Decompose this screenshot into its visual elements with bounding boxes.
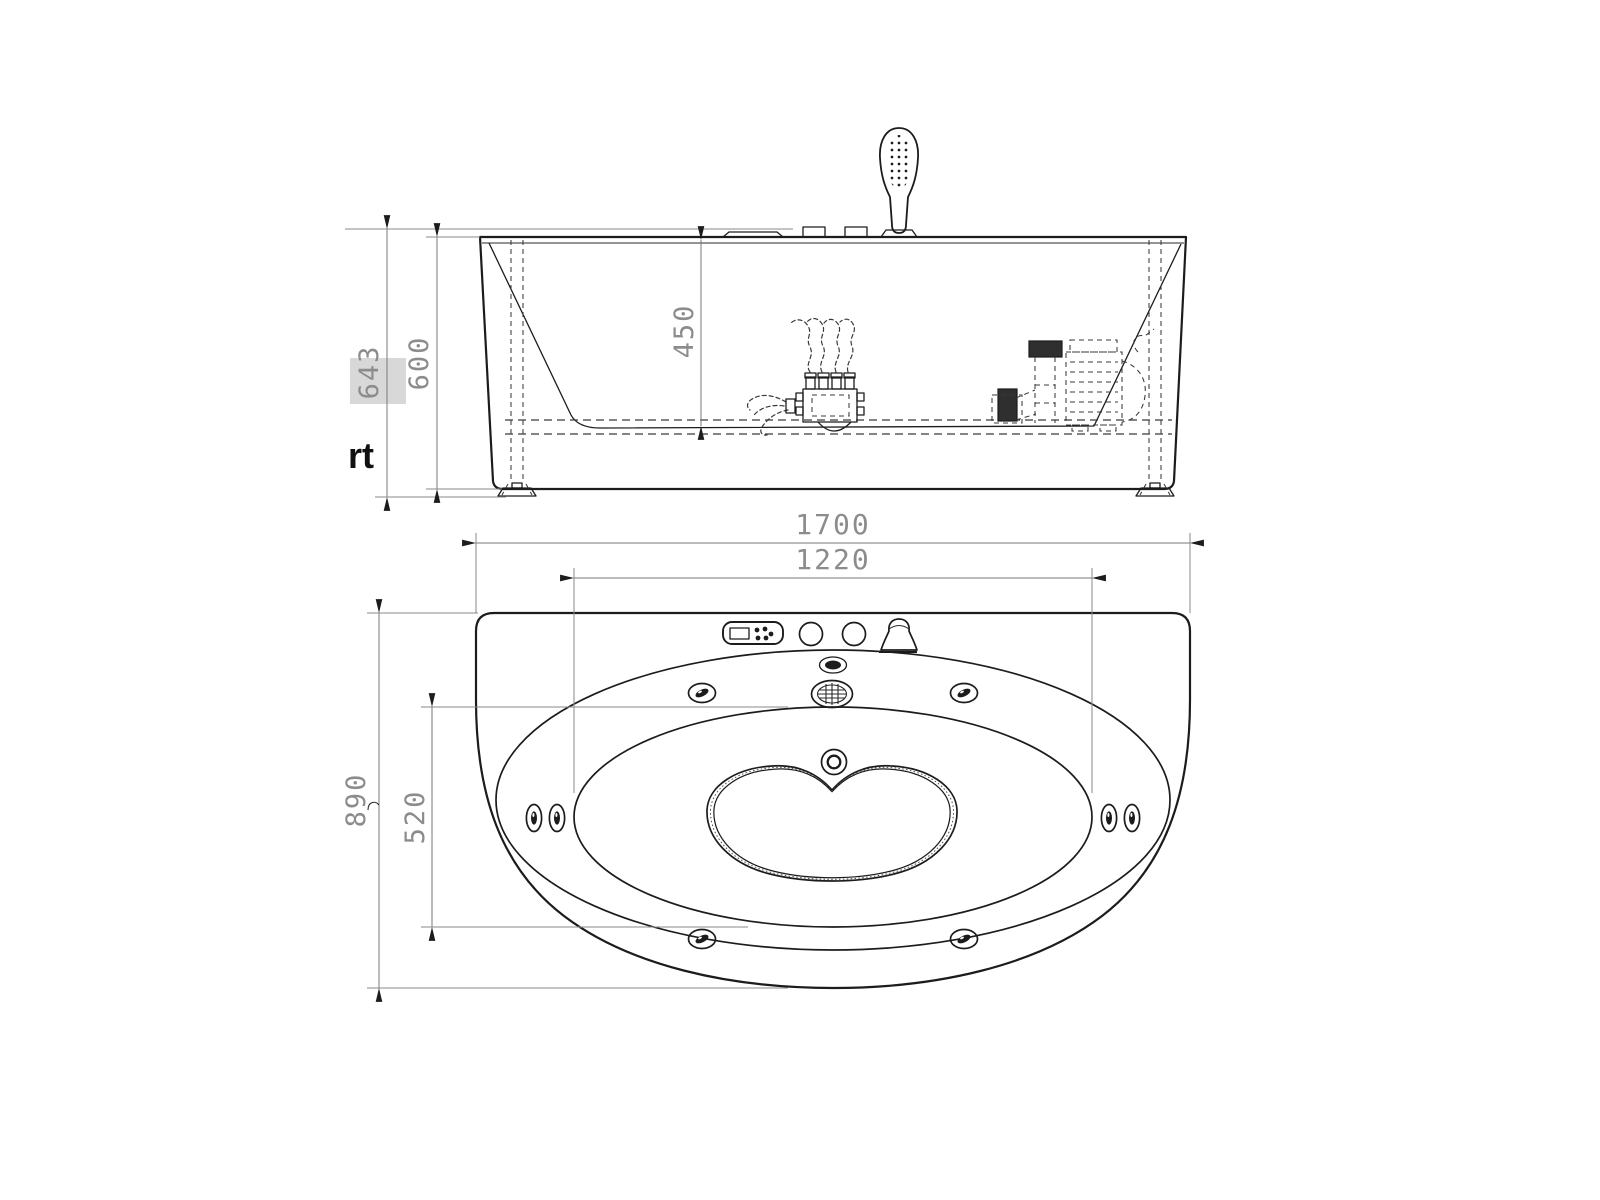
dimension-basin-width: 520 [400,707,788,927]
control-panel [723,622,783,644]
plan-view: 1700 1220 520 890 [341,508,1190,988]
dimension-inner-depth: 450 [669,240,701,426]
dim-label-total-height: 643 [354,345,385,400]
temperature-knob [800,623,823,646]
side-jet [526,805,541,832]
seat-contour [707,766,957,881]
shower-face-dots [887,135,912,189]
deck-button [845,227,867,237]
overflow-cover [820,657,847,673]
side-jet [1124,805,1139,832]
hydro-jet [951,684,978,703]
dim-label-body-height: 600 [404,336,435,391]
overflow-hose-hook [1134,329,1154,352]
dim-label-overall-width: 890 [341,773,372,828]
water-pump [992,329,1154,431]
hydro-jet [689,684,716,703]
temperature-knob [843,623,866,646]
pump-end-cap [1122,361,1145,422]
side-jet [549,805,564,832]
basin-interior-profile [489,243,1181,428]
rim-inner-oval [496,650,1170,950]
hydro-jet [689,930,716,949]
panel-buttons [755,627,774,641]
deck-button [803,227,825,237]
dim-label-overall-length: 1700 [795,508,870,541]
manifold-nozzle [786,399,795,413]
dim-label-basin-width: 520 [400,790,431,845]
pump-motor-top [1070,340,1117,352]
manifold-fittings [805,373,855,389]
suction-grille [812,681,853,708]
faucet-spout [879,619,917,652]
basin-waterline-oval [574,707,1092,927]
hydro-jet [951,930,978,949]
pump-motor-body [1066,352,1122,425]
drain-cap [822,750,847,775]
dim-label-basin-length: 1220 [795,543,870,576]
display-window [730,628,749,639]
drawing-page: 643 600 450 rt [0,0,1600,1200]
dim-label-inner-depth: 450 [669,304,700,359]
technical-drawing-canvas: 643 600 450 rt [0,0,1600,1200]
elevation-view: 643 600 450 rt [345,128,1186,497]
watermark-text: rt [348,435,374,476]
air-control-manifold [748,318,864,435]
pump-coupling [1029,341,1062,357]
side-jet [1101,805,1116,832]
tub-body-outline [480,237,1186,489]
hand-shower [880,128,918,237]
pump-inlet-fitting [998,389,1017,421]
